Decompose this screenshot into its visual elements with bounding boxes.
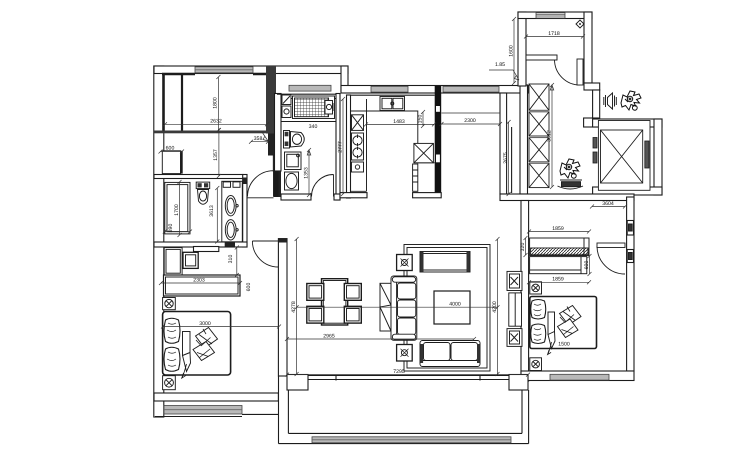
svg-text:358: 358 [254, 136, 263, 142]
svg-text:600: 600 [246, 283, 252, 292]
svg-text:4200: 4200 [492, 301, 498, 313]
svg-text:310: 310 [228, 255, 234, 264]
svg-text:320: 320 [520, 243, 526, 252]
svg-text:1483: 1483 [393, 119, 405, 125]
svg-text:2303: 2303 [193, 278, 205, 284]
svg-text:340: 340 [309, 124, 318, 130]
svg-text:150: 150 [418, 115, 424, 124]
svg-text:3000: 3000 [199, 321, 211, 327]
svg-text:1700: 1700 [174, 204, 180, 216]
svg-text:1718: 1718 [548, 31, 560, 37]
svg-text:3604: 3604 [602, 201, 614, 207]
svg-text:3613: 3613 [209, 205, 215, 217]
svg-text:7295: 7295 [393, 369, 405, 375]
svg-text:600: 600 [584, 261, 590, 270]
svg-text:2965: 2965 [323, 334, 335, 340]
svg-text:1353: 1353 [304, 167, 310, 179]
svg-text:1.85: 1.85 [495, 62, 505, 68]
svg-text:2632: 2632 [210, 119, 222, 125]
svg-text:1859: 1859 [552, 226, 564, 232]
svg-text:4278: 4278 [291, 301, 297, 313]
svg-text:600: 600 [166, 146, 175, 152]
svg-text:1859: 1859 [552, 277, 564, 283]
svg-text:1500: 1500 [558, 342, 570, 348]
svg-text:2675: 2675 [503, 152, 509, 164]
svg-text:1357: 1357 [213, 149, 219, 161]
svg-text:1800: 1800 [213, 97, 219, 109]
svg-text:4000: 4000 [449, 302, 461, 308]
svg-text:1600: 1600 [509, 45, 515, 57]
svg-text:890: 890 [168, 224, 174, 233]
svg-text:3012: 3012 [547, 130, 553, 142]
svg-text:2300: 2300 [464, 118, 476, 124]
svg-text:2777: 2777 [338, 141, 344, 153]
